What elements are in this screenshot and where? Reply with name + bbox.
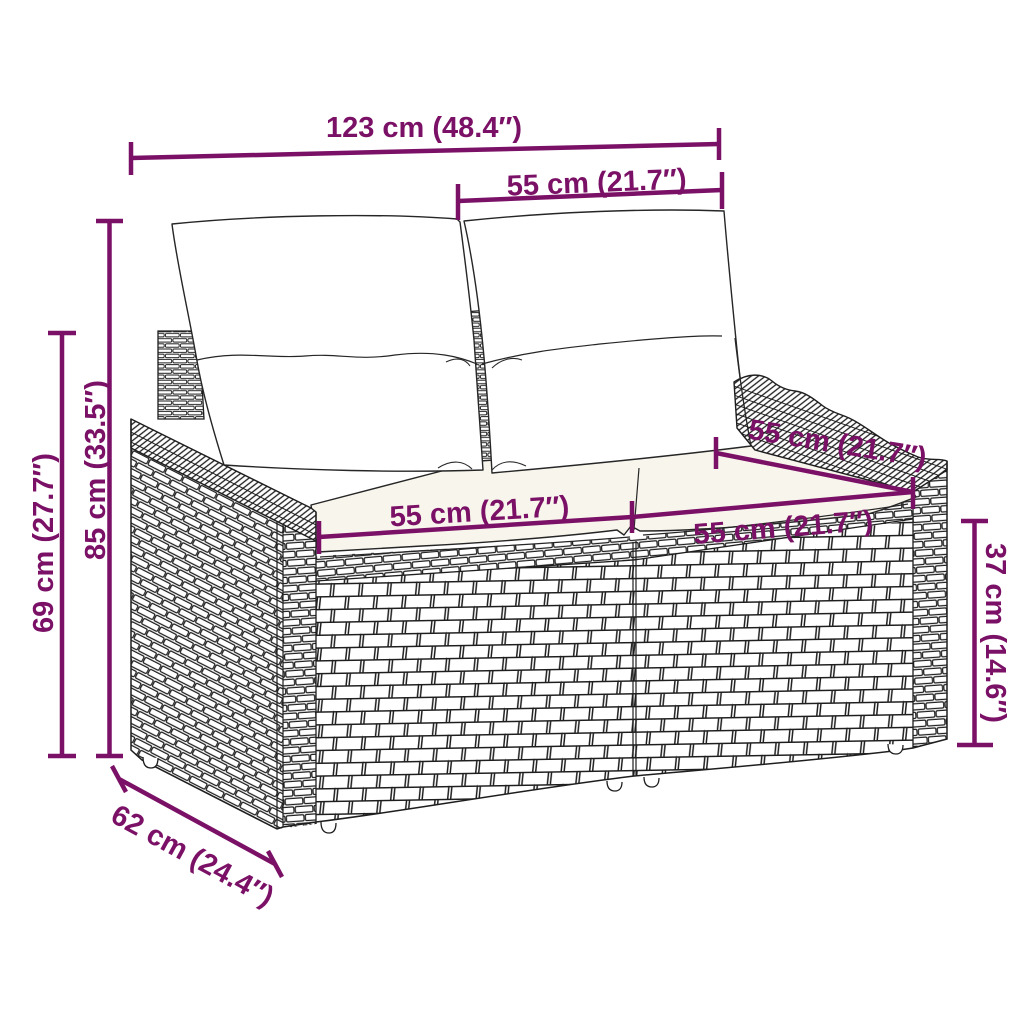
svg-text:69 cm (27.7″): 69 cm (27.7″) [28,453,60,633]
svg-text:37 cm (14.6″): 37 cm (14.6″) [979,543,1011,723]
svg-text:85 cm (33.5″): 85 cm (33.5″) [80,380,112,560]
svg-text:123 cm (48.4″): 123 cm (48.4″) [326,112,522,144]
